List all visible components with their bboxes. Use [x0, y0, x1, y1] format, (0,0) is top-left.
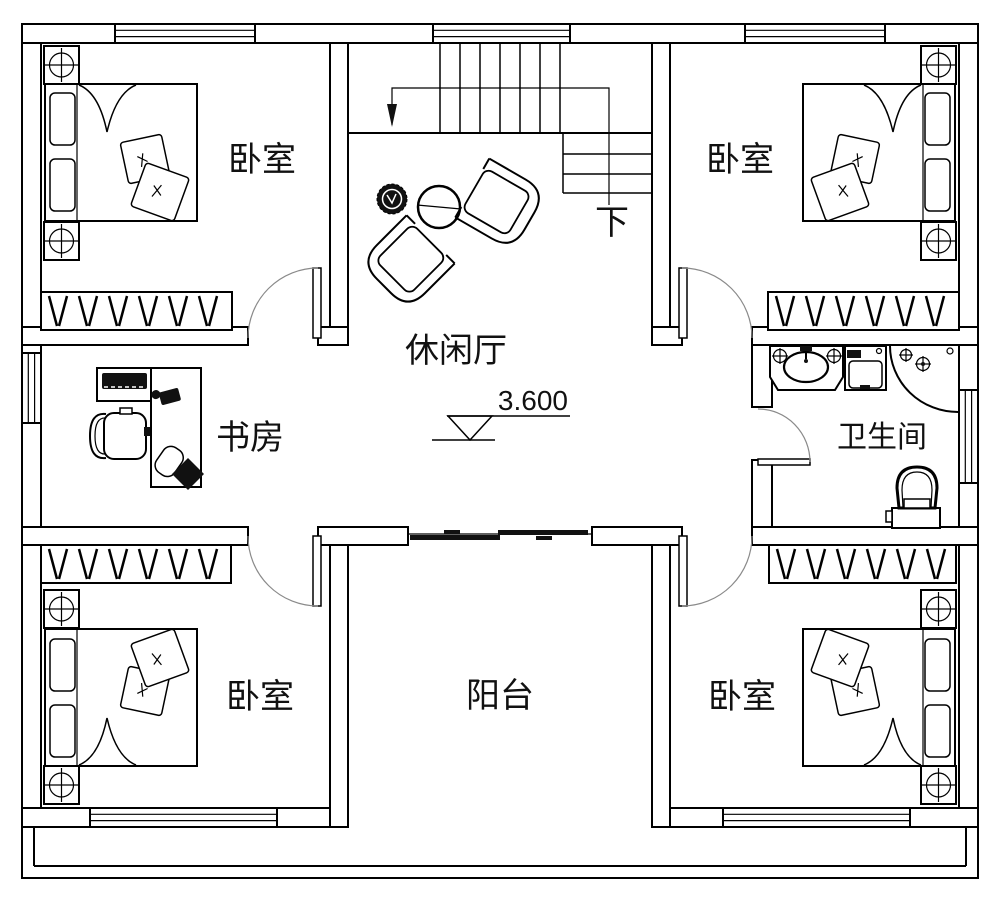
swing-door-icon [248, 268, 321, 338]
level-value: 3.600 [498, 385, 568, 416]
bed-icon [44, 590, 197, 804]
level-marker-icon [432, 416, 570, 440]
window-icon [433, 24, 570, 43]
room-label-bedroom-bl: 卧室 [226, 678, 294, 716]
room-label-lounge: 休闲厅 [405, 332, 507, 370]
toilet-icon [886, 467, 940, 528]
bed-icon [803, 590, 956, 804]
wardrobe-icon [769, 545, 956, 583]
study-furniture [90, 368, 204, 490]
armchair-icon [455, 159, 546, 251]
floor-plan: 卧室 卧室 卧室 卧室 休闲厅 书房 卫生间 阳台 下 3.600 [0, 0, 1000, 902]
round-table-icon [417, 186, 461, 228]
swing-door-icon [248, 536, 321, 606]
railing [34, 827, 966, 866]
stair-direction-arrow-icon [387, 104, 397, 127]
sink-icon [770, 346, 843, 390]
shower-icon [890, 346, 958, 412]
sliding-door-icon [408, 530, 592, 540]
wardrobe-icon [41, 545, 231, 583]
plant-icon [377, 184, 407, 214]
room-label-bathroom: 卫生间 [837, 421, 927, 454]
room-label-bedroom-tl: 卧室 [228, 141, 296, 179]
wardrobe-icon [41, 292, 232, 330]
lounge-furniture [360, 159, 547, 311]
window-icon [959, 390, 978, 483]
washing-machine-icon [845, 346, 886, 390]
bed-icon [44, 46, 197, 260]
wardrobe-icon [768, 292, 959, 330]
swing-door-icon [679, 268, 752, 338]
window-icon [115, 24, 255, 43]
room-label-bedroom-tr: 卧室 [706, 141, 774, 179]
window-icon [22, 353, 41, 423]
armchair-icon [360, 215, 455, 310]
room-label-study: 书房 [216, 419, 284, 457]
window-icon [90, 808, 277, 827]
swing-door-icon [679, 536, 752, 606]
room-label-bedroom-br: 卧室 [708, 678, 776, 716]
stairs-down-label: 下 [595, 204, 629, 242]
room-label-balcony: 阳台 [466, 677, 534, 715]
bed-icon [803, 46, 956, 260]
swing-door-icon [758, 409, 810, 465]
window-icon [745, 24, 885, 43]
office-chair-icon [90, 408, 150, 459]
window-icon [723, 808, 910, 827]
